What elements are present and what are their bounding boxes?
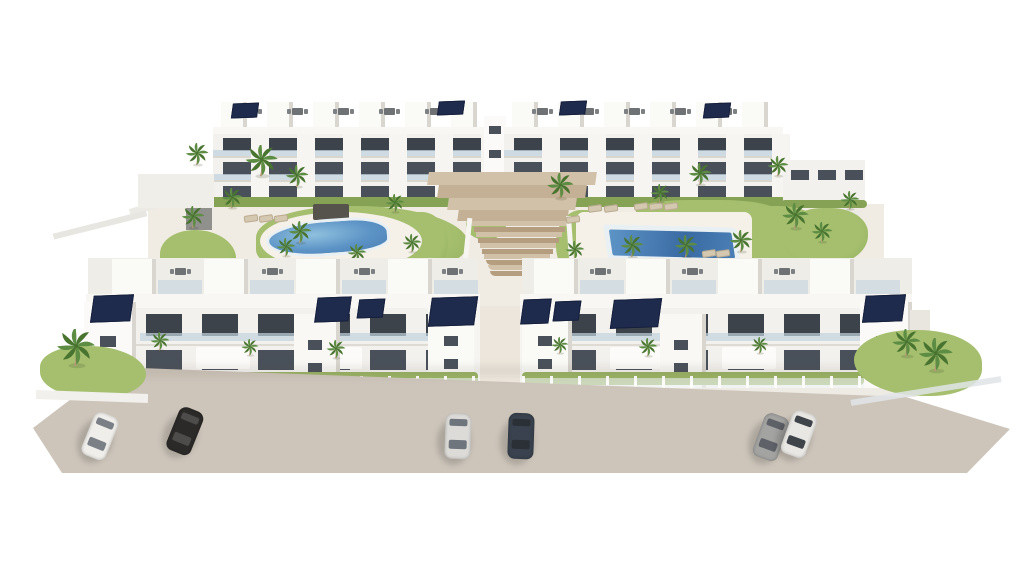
penthouse-box-shade bbox=[666, 259, 670, 296]
roof-furniture-chair bbox=[699, 269, 703, 274]
roof-unit-shade bbox=[672, 102, 676, 130]
car-window bbox=[95, 417, 114, 430]
car bbox=[507, 413, 535, 460]
penthouse-box-shade bbox=[428, 259, 432, 296]
car-window bbox=[512, 419, 530, 427]
tower-window bbox=[538, 336, 552, 346]
roof-furniture-table bbox=[629, 108, 640, 115]
solar-panel-array bbox=[559, 101, 587, 116]
roof-furniture-chair bbox=[590, 269, 594, 274]
terrace-rail bbox=[856, 280, 900, 294]
roof-furniture-table bbox=[338, 108, 349, 115]
stair-step bbox=[482, 249, 553, 254]
floor-line bbox=[86, 344, 478, 346]
parapet bbox=[86, 294, 480, 308]
facade-pier bbox=[680, 134, 698, 206]
side-wing bbox=[138, 174, 214, 208]
terrace-rail bbox=[342, 280, 386, 294]
terrace-rail bbox=[580, 280, 624, 294]
roof-furniture-chair bbox=[641, 109, 645, 114]
roof-furniture-chair bbox=[425, 109, 429, 114]
tower-window bbox=[100, 336, 116, 347]
roof-furniture-chair bbox=[442, 269, 446, 274]
roof-furniture-chair bbox=[287, 109, 291, 114]
penthouse-box bbox=[388, 259, 432, 296]
terrace-rail bbox=[672, 280, 716, 294]
terrace-rail bbox=[158, 280, 202, 294]
roof-furniture-chair bbox=[350, 109, 354, 114]
facade-pier bbox=[389, 134, 407, 206]
roof-unit-shade bbox=[289, 102, 293, 130]
roof-furniture-chair bbox=[304, 109, 308, 114]
penthouse-box bbox=[534, 259, 578, 296]
roof-furniture-chair bbox=[607, 269, 611, 274]
tower-window bbox=[674, 340, 688, 350]
palm-tree bbox=[184, 143, 210, 167]
penthouse-box bbox=[810, 259, 854, 296]
car-window bbox=[87, 436, 107, 451]
roof-furniture-chair bbox=[354, 269, 358, 274]
roof-furniture-chair bbox=[687, 109, 691, 114]
penthouse-box-shade bbox=[574, 259, 578, 296]
stair-step bbox=[474, 227, 565, 232]
roof-unit-shade bbox=[427, 102, 431, 130]
roof-furniture-chair bbox=[682, 269, 686, 274]
penthouse-box bbox=[204, 259, 248, 296]
roof-furniture-chair bbox=[774, 269, 778, 274]
roof-furniture-table bbox=[595, 268, 606, 275]
palm-icon bbox=[184, 143, 210, 167]
car-window bbox=[758, 438, 778, 453]
roof-furniture-chair bbox=[459, 269, 463, 274]
roof-furniture-chair bbox=[624, 109, 628, 114]
roof-furniture-table bbox=[687, 268, 698, 275]
roof-furniture-chair bbox=[532, 109, 536, 114]
facade-pier bbox=[297, 134, 315, 206]
roof-furniture-table bbox=[675, 108, 686, 115]
car-window bbox=[180, 412, 199, 425]
solar-panel-array bbox=[862, 294, 906, 322]
car-window bbox=[449, 419, 467, 427]
solar-panel-array bbox=[553, 301, 582, 322]
penthouse-box-shade bbox=[152, 259, 156, 296]
roof-unit-shade bbox=[764, 102, 768, 130]
car-window bbox=[512, 440, 530, 450]
floor-line bbox=[522, 344, 912, 346]
stair-step bbox=[472, 221, 568, 226]
solar-panel-array bbox=[610, 298, 662, 329]
penthouse-box-shade bbox=[850, 259, 854, 296]
roof-furniture-chair bbox=[549, 109, 553, 114]
stair-step bbox=[478, 238, 559, 243]
stair-step bbox=[476, 232, 562, 237]
terrace-rail bbox=[764, 280, 808, 294]
roof-unit-shade bbox=[626, 102, 630, 130]
stair-step bbox=[480, 243, 556, 248]
penthouse-box bbox=[626, 259, 670, 296]
roof-furniture-chair bbox=[371, 269, 375, 274]
roof-unit-shade bbox=[381, 102, 385, 130]
facade-pier bbox=[634, 134, 652, 206]
roof-furniture-table bbox=[292, 108, 303, 115]
tower-window bbox=[489, 150, 501, 158]
window bbox=[845, 170, 863, 180]
roof-furniture-table bbox=[537, 108, 548, 115]
facade-pier bbox=[726, 134, 744, 206]
penthouse-box-shade bbox=[244, 259, 248, 296]
penthouse-box-shade bbox=[758, 259, 762, 296]
roof-furniture-table bbox=[267, 268, 278, 275]
roof-furniture-table bbox=[779, 268, 790, 275]
street-top-shadow bbox=[120, 366, 910, 376]
roof-furniture-chair bbox=[791, 269, 795, 274]
stair-terrace bbox=[427, 172, 597, 185]
terrace-rail bbox=[250, 280, 294, 294]
car-window bbox=[786, 435, 806, 450]
balcony-glass bbox=[554, 333, 886, 341]
facade-pier bbox=[251, 134, 269, 206]
tower-window bbox=[444, 336, 458, 346]
side-wing bbox=[783, 160, 865, 204]
window bbox=[791, 170, 809, 180]
roof-furniture-chair bbox=[170, 269, 174, 274]
terrace-rail bbox=[434, 280, 478, 294]
stair-terrace bbox=[447, 198, 577, 210]
solar-panel-array bbox=[703, 103, 731, 119]
roof-unit-shade bbox=[473, 102, 477, 130]
roof-furniture-chair bbox=[333, 109, 337, 114]
roof-furniture-table bbox=[175, 268, 186, 275]
tower-window bbox=[308, 340, 322, 350]
penthouse-box bbox=[718, 259, 762, 296]
roof-furniture-chair bbox=[258, 109, 262, 114]
roof-furniture-chair bbox=[396, 109, 400, 114]
facade-pier bbox=[588, 134, 606, 206]
stair-terrace bbox=[437, 185, 587, 198]
roof-furniture-chair bbox=[670, 109, 674, 114]
solar-panel-array bbox=[520, 299, 552, 325]
roof-furniture-table bbox=[359, 268, 370, 275]
solar-panel-array bbox=[437, 101, 465, 116]
window bbox=[818, 170, 836, 180]
roof-furniture-chair bbox=[595, 109, 599, 114]
solar-panel-array bbox=[314, 296, 352, 322]
roof-unit-shade bbox=[534, 102, 538, 130]
car bbox=[444, 413, 472, 460]
roof-furniture-chair bbox=[279, 269, 283, 274]
roof-furniture-table bbox=[384, 108, 395, 115]
car-window bbox=[449, 440, 467, 450]
render-stage: Aerial 3D architectural rendering of a w… bbox=[0, 0, 1024, 576]
solar-panel-array bbox=[428, 296, 478, 327]
solar-panel-array bbox=[231, 103, 259, 119]
roof-furniture-chair bbox=[379, 109, 383, 114]
roof-furniture-chair bbox=[262, 269, 266, 274]
solar-panel-array bbox=[90, 294, 134, 322]
penthouse-box-shade bbox=[336, 259, 340, 296]
perimeter-wall bbox=[53, 210, 148, 239]
penthouse-box bbox=[296, 259, 340, 296]
roof-furniture-chair bbox=[733, 109, 737, 114]
roof-unit-shade bbox=[335, 102, 339, 130]
solar-panel-array bbox=[357, 299, 386, 319]
car-window bbox=[172, 431, 192, 446]
penthouse-box bbox=[112, 259, 156, 296]
tower-window bbox=[489, 126, 501, 134]
car-window bbox=[794, 415, 813, 428]
roof-furniture-table bbox=[447, 268, 458, 275]
roof-furniture-chair bbox=[187, 269, 191, 274]
stair-terrace bbox=[457, 210, 569, 221]
facade-pier bbox=[343, 134, 361, 206]
